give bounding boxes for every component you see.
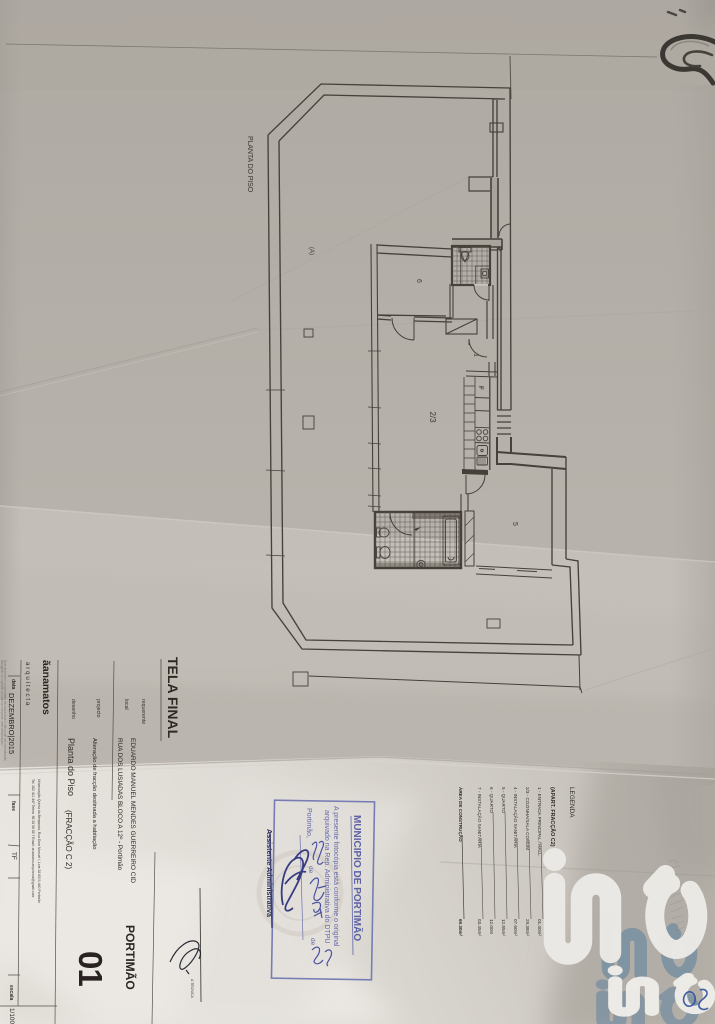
svg-text:data: data bbox=[10, 679, 16, 690]
svg-text:5 - QUARTO: 5 - QUARTO bbox=[501, 787, 506, 814]
svg-text:TF: TF bbox=[10, 852, 17, 860]
svg-text:local: local bbox=[123, 699, 129, 710]
svg-text:escala: escala bbox=[8, 985, 14, 1001]
svg-text:4 - INSTALAÇÃO SANITÁRIA: 4 - INSTALAÇÃO SANITÁRIA bbox=[513, 787, 519, 849]
svg-text:Urbanização Quinta da Bemposta: Urbanização Quinta da Bemposta, Rua Dom … bbox=[37, 779, 41, 903]
svg-text:1/100: 1/100 bbox=[8, 1008, 15, 1024]
svg-text:PORTIMÃO: PORTIMÃO bbox=[123, 925, 138, 990]
svg-text:ãanamatos: ãanamatos bbox=[40, 660, 52, 715]
svg-text:01: 01 bbox=[72, 951, 109, 986]
svg-text:07.60m²: 07.60m² bbox=[513, 919, 518, 936]
svg-text:A TÉCNICA: A TÉCNICA bbox=[190, 979, 195, 999]
svg-text:7 - INSTALAÇÃO SANITÁRIA: 7 - INSTALAÇÃO SANITÁRIA bbox=[477, 787, 483, 849]
svg-text:TELA FINAL: TELA FINAL bbox=[165, 657, 181, 739]
svg-text:(A): (A) bbox=[308, 247, 314, 255]
svg-text:Portimão,: Portimão, bbox=[305, 808, 312, 838]
svg-text:PLANTA DO PISO: PLANTA DO PISO bbox=[246, 136, 253, 193]
svg-text:F: F bbox=[477, 386, 483, 390]
svg-text:Assistente Administrativa: Assistente Administrativa bbox=[265, 829, 274, 918]
svg-text:arquivado na Rep. Administrati: arquivado na Rep. Administrativa do DTPU bbox=[323, 810, 330, 943]
svg-text:5: 5 bbox=[511, 522, 518, 526]
svg-text:ÁREA DE CONSTRUÇÃO: ÁREA DE CONSTRUÇÃO bbox=[458, 787, 464, 842]
svg-text:1: 1 bbox=[472, 353, 479, 357]
svg-text:fase: fase bbox=[10, 801, 16, 811]
svg-text:(APART. FRACÇÃO C2): (APART. FRACÇÃO C2) bbox=[549, 787, 556, 847]
svg-text:RUA DOS LUSIADAS BLOCO A 12º -: RUA DOS LUSIADAS BLOCO A 12º - Portimão bbox=[116, 738, 123, 871]
svg-text:6: 6 bbox=[415, 279, 422, 283]
svg-text:divulgado ou copiado no todo o: divulgado ou copiado no todo ou em parte… bbox=[0, 660, 4, 746]
svg-text:69.30m²: 69.30m² bbox=[458, 919, 463, 937]
svg-text:A presente fotocópia está conf: A presente fotocópia está conforme o ori… bbox=[332, 806, 339, 947]
svg-text:requerente: requerente bbox=[140, 699, 146, 724]
svg-text:arquitecta: arquitecta bbox=[24, 662, 31, 707]
svg-text:03.45m²: 03.45m² bbox=[477, 919, 482, 936]
svg-text:6 - QUARTO: 6 - QUARTO bbox=[489, 787, 494, 814]
svg-text:(FRACÇÃO C 2): (FRACÇÃO C 2) bbox=[64, 810, 73, 869]
svg-text:de: de bbox=[309, 938, 316, 946]
svg-text:de: de bbox=[307, 866, 314, 874]
svg-text:01.40m²: 01.40m² bbox=[537, 919, 542, 936]
svg-text:Alteração de fracção destinada: Alteração de fracção destinada a habitaç… bbox=[91, 738, 97, 850]
svg-text:12.00m: 12.00m bbox=[489, 919, 494, 934]
svg-text:12.85m²: 12.85m² bbox=[501, 919, 506, 936]
svg-text:projecto: projecto bbox=[95, 699, 101, 718]
svg-text:LEGENDA: LEGENDA bbox=[568, 787, 575, 818]
svg-text:desenho: desenho bbox=[70, 699, 76, 719]
svg-text:DEZEMBRO|2015: DEZEMBRO|2015 bbox=[7, 693, 16, 754]
svg-text:Planta do Piso: Planta do Piso bbox=[66, 738, 76, 796]
svg-text:2/3: 2/3 bbox=[428, 411, 437, 423]
svg-text:EDUARDO MANUEL MENDES GUERREIR: EDUARDO MANUEL MENDES GUERREIRO CID bbox=[129, 738, 136, 883]
svg-text:29.38m²: 29.38m² bbox=[525, 919, 530, 936]
svg-text:Tel. 282 411 447 Telem. 96: Tel. 282 411 447 Telem. 96 28 58 58 7 Em… bbox=[31, 779, 35, 897]
